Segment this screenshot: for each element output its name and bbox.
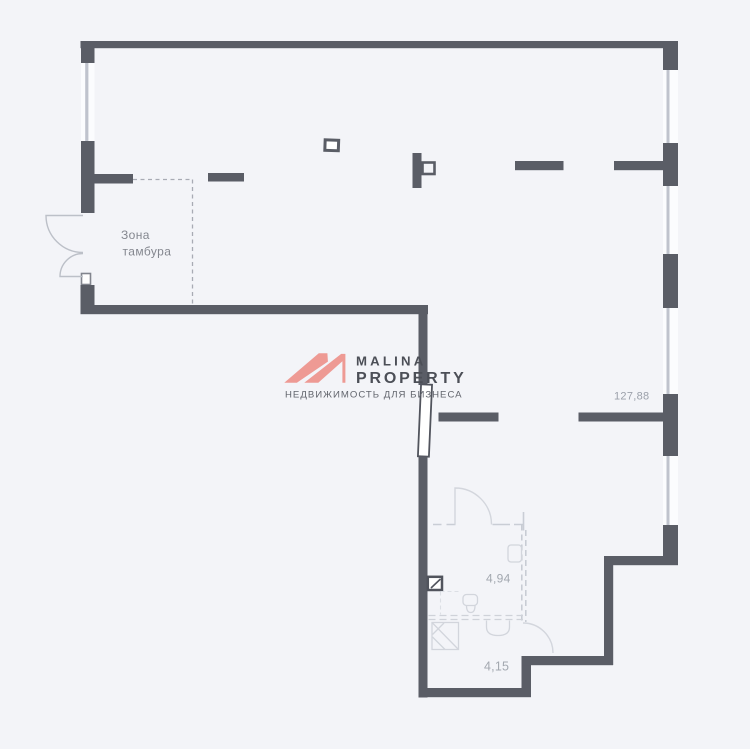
svg-text:тамбура: тамбура bbox=[123, 245, 172, 259]
svg-text:4,15: 4,15 bbox=[484, 660, 509, 674]
svg-text:4,94: 4,94 bbox=[486, 572, 511, 586]
svg-text:127,88: 127,88 bbox=[614, 391, 649, 403]
svg-text:Зона: Зона bbox=[121, 228, 150, 242]
svg-text:НЕДВИЖИМОСТЬ ДЛЯ БИЗНЕСА: НЕДВИЖИМОСТЬ ДЛЯ БИЗНЕСА bbox=[285, 390, 463, 401]
svg-text:PROPERTY: PROPERTY bbox=[356, 370, 467, 387]
svg-text:MALINA: MALINA bbox=[356, 353, 426, 368]
